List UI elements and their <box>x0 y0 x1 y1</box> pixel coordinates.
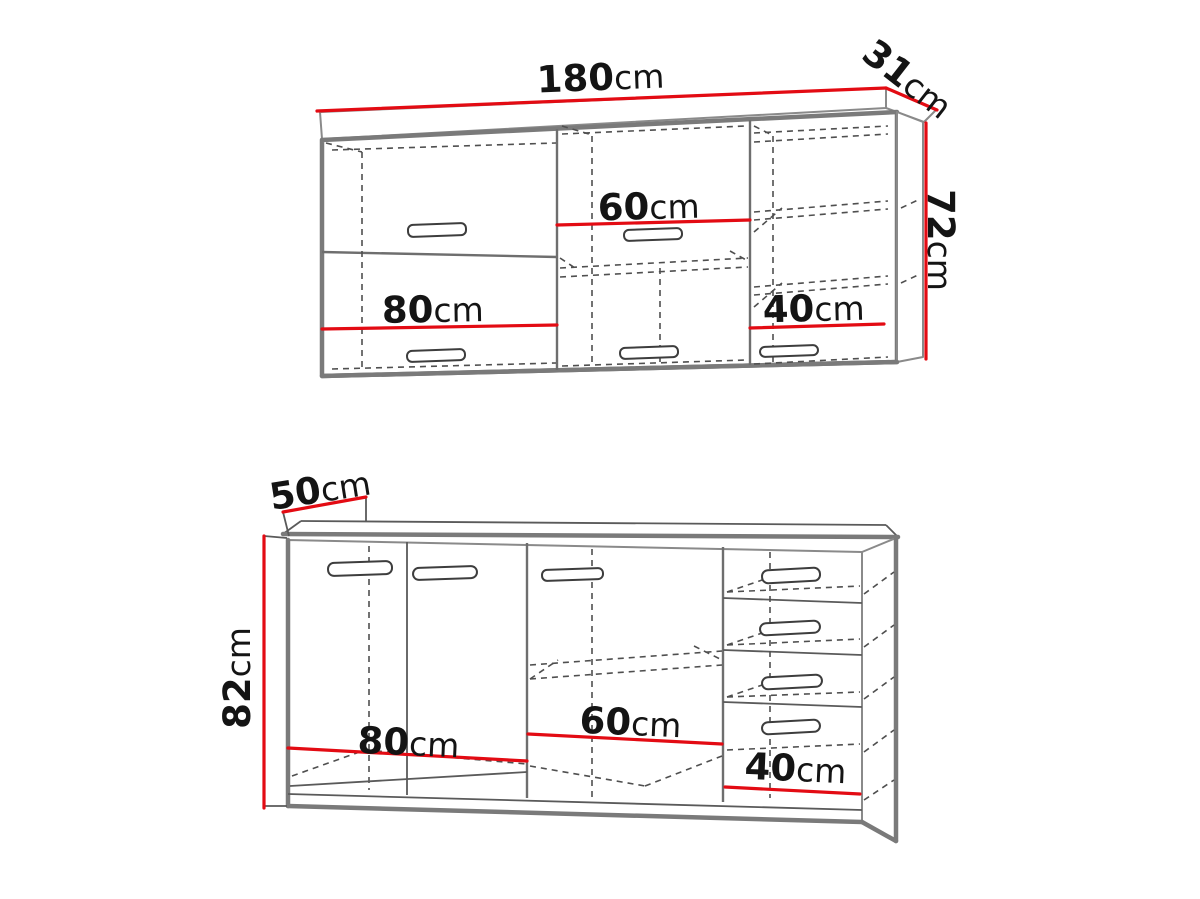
wall-middle-upper-door-handle <box>624 228 682 241</box>
base-section-middle-dimension-label: 60cm <box>579 699 683 746</box>
base-countertop-front-edge <box>283 534 898 537</box>
diagram-canvas: 180cm 31cm 72cm 80cm 60cm 40cm <box>0 0 1200 899</box>
wall-left-upper-door-handle <box>408 223 466 237</box>
base-cabinet-side-panel <box>862 538 896 841</box>
cabinet-dimension-diagram: 180cm 31cm 72cm 80cm 60cm 40cm <box>0 0 1200 899</box>
wall-height-dimension-label: 72cm <box>919 189 962 291</box>
wall-middle-lower-door-handle <box>620 346 678 359</box>
wall-section-right-dimension-label: 40cm <box>762 286 865 332</box>
base-left-door2-handle <box>413 566 477 580</box>
wall-cabinet-front <box>322 112 897 376</box>
base-middle-door-handle <box>542 568 603 581</box>
wall-left-lower-door-handle <box>407 349 465 362</box>
base-drawer3-handle <box>762 674 823 689</box>
base-height-connector-top <box>264 536 287 538</box>
base-height-dimension-label: 82cm <box>216 627 259 729</box>
base-countertop-back-edge <box>301 521 886 525</box>
wall-cabinet-drawing: 180cm 31cm 72cm 80cm 60cm 40cm <box>317 31 962 376</box>
base-cabinet-drawing: 50cm 82cm 80cm 60cm 40cm <box>216 460 898 841</box>
base-section-left-dimension-label: 80cm <box>357 719 461 766</box>
base-drawer2-handle <box>760 620 821 635</box>
wall-width-dimension-label: 180cm <box>536 53 665 101</box>
wall-section-middle-dimension-label: 60cm <box>597 184 700 230</box>
base-left-door1-handle <box>328 561 392 576</box>
wall-section-left-dimension-label: 80cm <box>382 287 485 332</box>
base-section-right-dimension-label: 40cm <box>744 745 848 792</box>
wall-right-door-handle <box>760 345 818 357</box>
base-drawer1-handle <box>762 567 821 583</box>
base-depth-dimension-label: 50cm <box>266 460 373 518</box>
base-drawer4-handle <box>762 719 821 734</box>
